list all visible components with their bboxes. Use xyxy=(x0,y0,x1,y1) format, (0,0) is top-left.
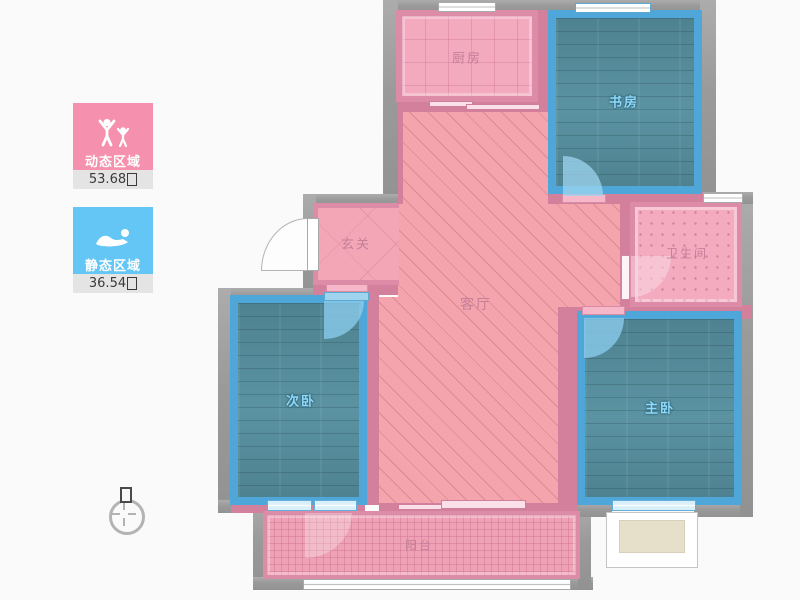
door-leaf-bathroom xyxy=(621,255,630,300)
window-balcony xyxy=(303,579,571,590)
window-kitchen xyxy=(438,2,496,12)
people-cheering-icon xyxy=(93,117,133,147)
label-hallway: 玄关 xyxy=(341,234,371,253)
window-bathroom xyxy=(703,193,743,203)
legend-static-label: 静态区域 xyxy=(85,255,141,274)
compass-tick-east xyxy=(128,513,136,515)
label-balcony: 阳台 xyxy=(405,537,433,554)
label-bathroom: 卫生间 xyxy=(666,245,708,262)
compass-tick-west xyxy=(112,513,120,515)
compass-north-glyph xyxy=(120,487,132,503)
label-living: 客厅 xyxy=(460,294,492,314)
sqm-unit-glyph xyxy=(127,173,137,186)
label-study: 书房 xyxy=(609,92,639,111)
window-bedroom2-a xyxy=(267,500,312,511)
sliding-door-balcony-a xyxy=(398,504,443,510)
label-kitchen: 厨房 xyxy=(452,48,482,67)
legend-dynamic-value: 53.68 xyxy=(73,170,153,189)
compass-icon xyxy=(109,499,145,535)
wall-study-right xyxy=(700,0,716,204)
door-gap-bedroom2 xyxy=(326,284,368,292)
sqm-unit-glyph xyxy=(127,277,137,290)
bay-window-sill xyxy=(619,520,685,553)
legend-dynamic-label: 动态区域 xyxy=(85,151,141,170)
door-gap-master xyxy=(582,306,625,315)
label-master: 主卧 xyxy=(645,398,675,417)
person-resting-icon xyxy=(93,225,133,251)
sliding-door-balcony-b xyxy=(441,500,526,509)
window-master xyxy=(612,500,696,511)
window-bedroom2-b xyxy=(314,500,357,511)
compass-tick-north xyxy=(123,502,125,510)
door-arc-entry xyxy=(261,218,308,271)
compass-tick-south xyxy=(123,518,125,526)
legend-static-value: 36.54 xyxy=(73,274,153,293)
sliding-door-kitchen-b xyxy=(466,104,540,110)
label-bedroom2: 次卧 xyxy=(286,391,316,410)
wall-living-left-lining xyxy=(398,112,403,204)
door-gap-bedroom2-inner xyxy=(324,292,369,301)
window-study xyxy=(575,3,651,13)
legend-static-area[interactable]: 静态区域 xyxy=(73,207,153,279)
door-leaf-entry xyxy=(307,218,319,271)
legend-dynamic-area[interactable]: 动态区域 xyxy=(73,103,153,175)
wall-living-master-divider xyxy=(558,305,578,505)
floorplan-page: 动态区域 53.68 静态区域 36.54 xyxy=(0,0,800,600)
